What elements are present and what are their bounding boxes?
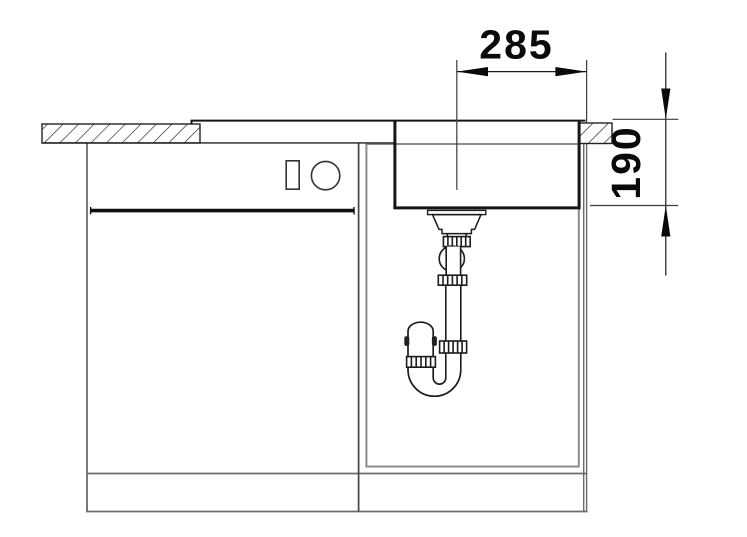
drawer-front bbox=[90, 161, 355, 215]
riser-tab-right bbox=[432, 336, 437, 346]
depth-arrow-bottom bbox=[661, 206, 670, 237]
strainer-cup bbox=[433, 215, 482, 234]
sink-cabinet-interior-box bbox=[366, 144, 578, 467]
width-arrow-left bbox=[457, 67, 488, 76]
depth-arrow-top bbox=[661, 89, 670, 120]
trap-nut-2 bbox=[438, 275, 466, 285]
depth-dimension-label: 190 bbox=[603, 125, 649, 199]
trap-nut-4 bbox=[440, 341, 467, 353]
dimension-depth: 190 bbox=[590, 53, 678, 276]
switch-icon bbox=[286, 161, 299, 189]
riser-tab-left bbox=[404, 336, 409, 346]
trap-upper-pipe bbox=[446, 247, 460, 276]
width-arrow-right bbox=[555, 67, 586, 76]
cabinet-outline bbox=[86, 143, 588, 512]
technical-drawing: 285 190 bbox=[0, 0, 747, 537]
trap-nut-1 bbox=[443, 237, 470, 247]
drawing-canvas: 285 190 bbox=[0, 0, 747, 537]
trap-nut-3 bbox=[407, 357, 436, 368]
width-dimension-label: 285 bbox=[479, 22, 553, 68]
countertop-left-slab bbox=[42, 124, 200, 143]
sink-deck-top bbox=[192, 121, 586, 125]
knob-icon bbox=[311, 161, 339, 189]
drain-trap bbox=[404, 210, 486, 396]
dimension-width: 285 bbox=[457, 22, 587, 191]
sink bbox=[192, 121, 586, 208]
countertop bbox=[42, 123, 612, 144]
